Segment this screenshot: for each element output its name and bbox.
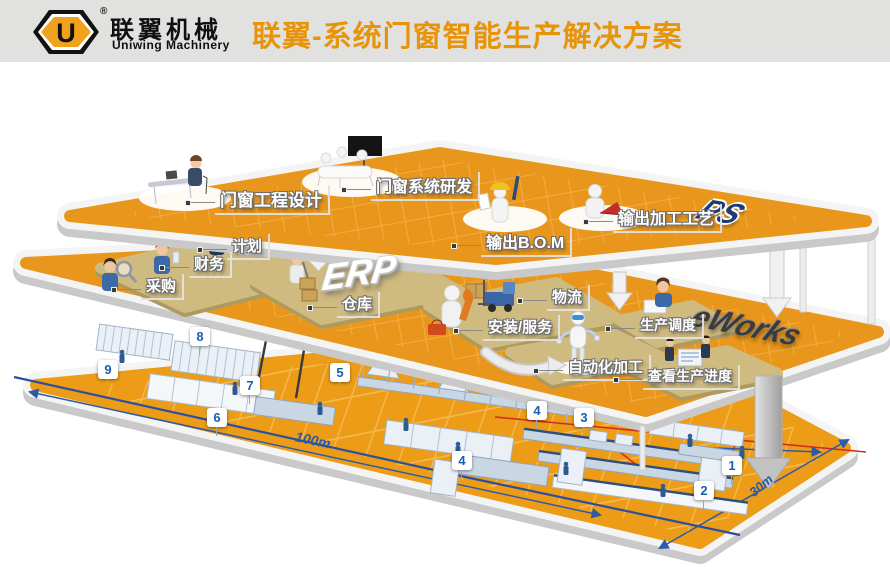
station-label-logistics: 物流 [547, 285, 590, 311]
infographic-page: U ® 联翼机械 Uniwing Machinery 联翼-系统门窗智能生产解决… [0, 0, 890, 567]
station-label-engineering-design: 门窗工程设计 [215, 185, 330, 215]
station-label-plan: 计划 [227, 234, 270, 260]
svg-text:U: U [56, 18, 76, 48]
station-label-purchase: 采购 [141, 274, 184, 300]
registered-mark: ® [100, 6, 107, 17]
machine-number-badge: 9 [98, 360, 118, 379]
station-label-finance: 财务 [189, 252, 232, 278]
machine-number-badge: 4 [527, 401, 547, 420]
station-label-scheduling: 生产调度 [635, 314, 704, 339]
machine-number-badge: 5 [330, 363, 350, 382]
machine-number-badge: 6 [207, 408, 227, 427]
page-title: 联翼-系统门窗智能生产解决方案 [252, 13, 683, 55]
station-label-auto-machining: 自动化加工 [563, 355, 651, 381]
machine-number-badge: 1 [722, 456, 742, 475]
company-name-en: Uniwing Machinery [112, 38, 230, 52]
station-label-system-rd: 门窗系统研发 [371, 172, 480, 201]
machine-number-badge: 2 [694, 481, 714, 500]
uniwing-logo-icon: U [30, 5, 102, 59]
station-label-output-bom: 输出B.O.M [481, 228, 572, 257]
station-label-output-craft: 输出加工工艺 [613, 204, 722, 233]
machine-number-badge: 8 [190, 327, 210, 346]
station-label-view-progress: 查看生产进度 [643, 365, 740, 390]
machine-number-badge: 7 [240, 376, 260, 395]
machine-number-badge: 4 [452, 451, 472, 470]
header-bar: U ® 联翼机械 Uniwing Machinery 联翼-系统门窗智能生产解决… [0, 0, 890, 62]
support-leg [640, 426, 645, 470]
machine-number-badge: 3 [574, 408, 594, 427]
station-label-install-service: 安装/服务 [483, 315, 560, 341]
station-label-warehouse: 仓库 [337, 292, 380, 318]
